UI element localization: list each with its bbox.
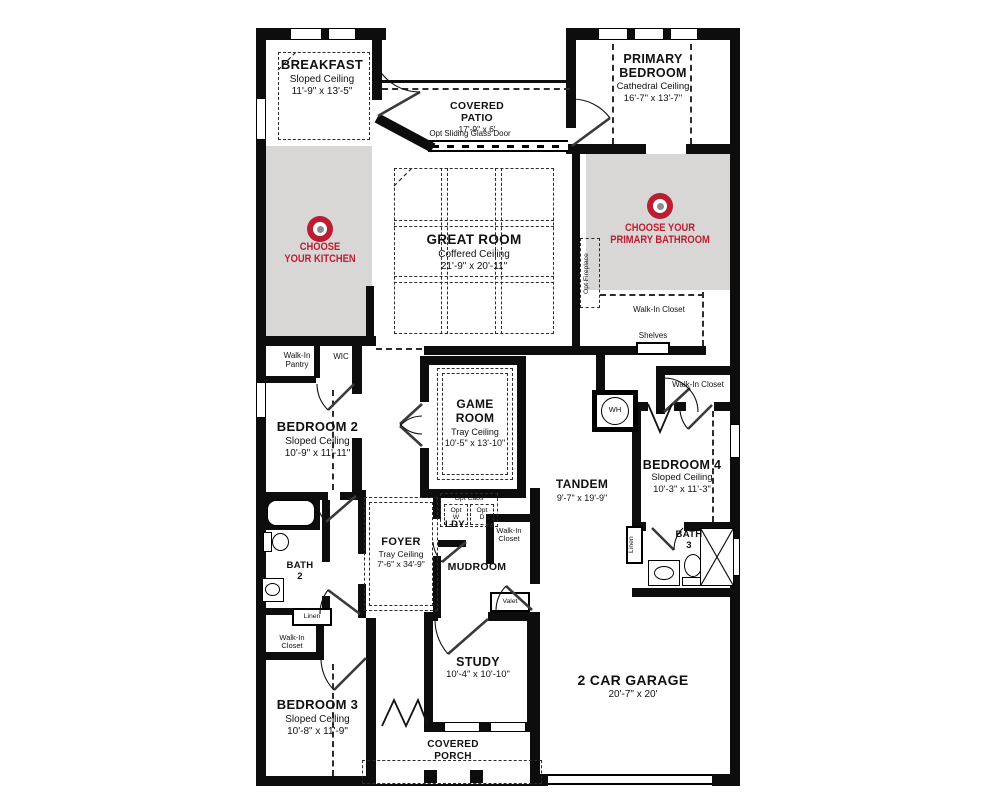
- target-icon-dot: [657, 203, 664, 210]
- bath-2-label: BATH 2: [280, 561, 320, 583]
- bedroom-4-label: BEDROOM 4 Sloped Ceiling 10'-3" x 11'-3": [628, 458, 736, 496]
- target-icon: [307, 216, 333, 242]
- linen-label: Linen: [628, 530, 641, 560]
- walk-in-pantry-label: Walk-In Pantry: [272, 352, 322, 370]
- mudroom-closet-label: Walk-In Closet: [486, 527, 532, 544]
- great-room-label: GREAT ROOM Coffered Ceiling 21'-9" x 20'…: [394, 232, 554, 273]
- garage-label: 2 CAR GARAGE 20'-7" x 20': [553, 672, 713, 701]
- door-arcs: [316, 68, 698, 690]
- choose-kitchen-callout[interactable]: CHOOSE YOUR KITCHEN: [261, 241, 380, 265]
- bath-3-label: BATH 3: [671, 530, 707, 552]
- foyer-label: FOYER Tray Ceiling 7'-6" x 34'-9": [365, 536, 437, 570]
- opt-fireplace-label: Opt Fireplace: [583, 243, 597, 305]
- shelves-label: Shelves: [630, 332, 676, 341]
- valet-label: Valet: [491, 598, 529, 605]
- covered-porch-label: COVERED PORCH: [407, 739, 499, 762]
- primary-walk-in-closet-label: Walk-In Closet: [628, 306, 690, 315]
- wic-label: WIC: [324, 353, 358, 362]
- laundry-label: LDY: [437, 520, 473, 531]
- floor-plan: BREAKFAST Sloped Ceiling 11'-9" x 13'-5"…: [0, 0, 1000, 800]
- breakfast-label: BREAKFAST Sloped Ceiling 11'-9" x 13'-5": [262, 58, 382, 98]
- target-icon: [647, 193, 673, 219]
- bedroom4-walk-in-closet-label: Walk-In Closet: [670, 381, 726, 390]
- wh-label: WH: [601, 406, 629, 415]
- choose-primary-bathroom-callout[interactable]: CHOOSE YOUR PRIMARY BATHROOM: [602, 222, 718, 246]
- target-icon-dot: [317, 226, 324, 233]
- tandem-label: TANDEM 9'-7" x 19'-9": [540, 478, 624, 503]
- game-room-label: GAME ROOM Tray Ceiling 10'-5" x 13'-10": [441, 398, 509, 448]
- opt-sliding-glass-door-label: Opt Sliding Glass Door: [406, 130, 534, 139]
- bedroom-2-label: BEDROOM 2 Sloped Ceiling 10'-9" x 11'-11…: [260, 420, 375, 460]
- opt-dryer-label: Opt D: [472, 507, 492, 521]
- bedroom3-closet-label: Walk-In Closet: [268, 634, 316, 651]
- mudroom-label: MUDROOM: [433, 561, 521, 573]
- primary-bedroom-label: PRIMARY BEDROOM Cathedral Ceiling 16'-7"…: [600, 52, 706, 105]
- linen-label: Linen: [294, 613, 330, 620]
- study-label: STUDY 10'-4" x 10'-10": [430, 655, 526, 681]
- bedroom-3-label: BEDROOM 3 Sloped Ceiling 10'-8" x 11'-9": [260, 698, 375, 738]
- opt-cabs-label: Opt Cabs: [442, 495, 496, 502]
